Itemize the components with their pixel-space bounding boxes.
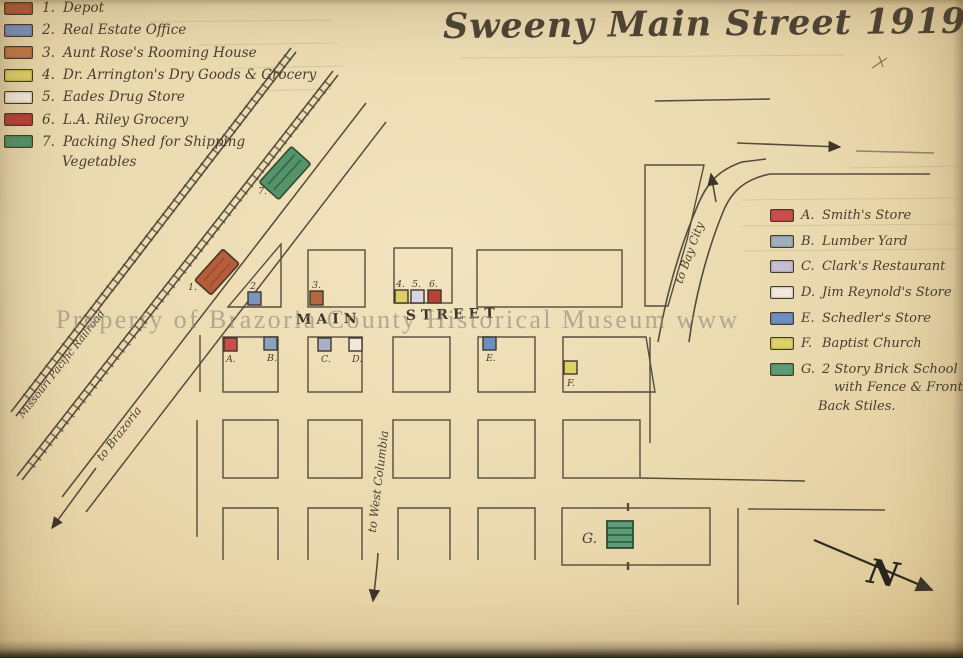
legend-item-7: 7. Packing Shed for Shipping [4,131,316,153]
marker-label-a: A. [225,354,236,365]
north-arrow: N [814,540,932,597]
legend-letter-g: G. [801,362,819,377]
marker-label-4: 4. [395,279,405,290]
map-title: Sweeny Main Street 1919 [443,4,858,47]
legend-item-4: 4. Dr. Arrington's Dry Goods & Grocery [4,64,316,86]
legend-letter-f: F. [801,336,819,351]
legend-number-2: 2. [42,22,60,38]
west-columbia-arrow [373,553,378,601]
legend-item-e: E. Schedler's Store [770,305,963,331]
legend-letter-c: C. [801,259,819,274]
legend-swatch-5 [4,91,33,104]
legend-swatch-c [770,260,794,273]
building-markers-above [248,290,441,305]
legend-label-b: Lumber Yard [822,234,908,249]
legend-item-g: G. 2 Story Brick School [770,357,963,383]
legend-number-5: 5. [42,89,60,105]
to-west-columbia-label: to West Columbia [365,430,391,534]
legend-letter-d: D. [801,285,819,300]
legend-item-1: 1. Depot [4,0,316,19]
depot-marker [195,249,239,295]
legend-swatch-3 [4,46,33,59]
main-street-label-word2: STREET [406,306,500,324]
legend-label-a: Smith's Store [822,208,911,223]
legend-label-3: Aunt Rose's Rooming House [63,45,257,61]
school-marker [607,521,633,548]
marker-label-e: E. [485,353,496,364]
legend-label-g-line2: with Fence & Front a [834,380,963,395]
depot-label: 1. [188,282,197,293]
legend-numbered: 1. Depot 2. Real Estate Office 3. Aunt R… [4,0,316,170]
legend-item-d: D. Jim Reynold's Store [770,280,963,306]
marker-label-3: 3. [312,280,321,291]
legend-swatch-4 [4,69,33,82]
legend-swatch-d [770,286,794,299]
legend-label-7-line2: Vegetables [62,154,316,170]
legend-item-2: 2. Real Estate Office [4,19,316,41]
legend-item-a: A. Smith's Store [770,203,963,229]
legend-swatch-f [770,337,794,350]
legend-label-4: Dr. Arrington's Dry Goods & Grocery [63,67,316,83]
legend-swatch-7 [4,135,33,148]
legend-swatch-6 [4,113,33,126]
packing-shed-label: 7. [258,186,267,197]
legend-label-g-line3: Back Stiles. [818,399,963,414]
to-brazoria-label: to Brazoria [93,404,144,464]
legend-label-d: Jim Reynold's Store [822,285,952,300]
legend-swatch-e [770,312,794,325]
legend-item-f: F. Baptist Church [770,331,963,357]
legend-item-b: B. Lumber Yard [770,229,963,255]
legend-label-c: Clark's Restaurant [822,259,945,274]
legend-label-7: Packing Shed for Shipping [63,134,245,150]
legend-item-5: 5. Eades Drug Store [4,86,316,108]
legend-swatch-2 [4,24,33,37]
pen-mark [872,56,887,68]
marker-label-f: F. [566,378,575,389]
legend-number-4: 4. [42,67,60,83]
legend-number-3: 3. [42,45,60,61]
railroad-label: Missouri Pacific Railroad [15,308,107,422]
legend-swatch-a [770,209,794,222]
marker-label-c: C. [321,354,331,365]
legend-number-1: 1. [42,0,60,16]
marker-label-g: G. [582,531,597,547]
legend-label-f: Baptist Church [822,336,922,351]
north-label: N [863,551,903,596]
legend-label-g: 2 Story Brick School [822,362,958,377]
main-street-label-word1: MAIN [296,311,362,328]
legend-label-e: Schedler's Store [822,311,931,326]
map-page: 1. 7. 2. 3. 4. 5. 6. A. [0,0,963,658]
marker-label-5: 5. [412,279,421,290]
marker-label-b: B. [266,353,277,364]
legend-number-7: 7. [42,134,60,150]
legend-swatch-b [770,235,794,248]
legend-label-5: Eades Drug Store [63,89,185,105]
legend-number-6: 6. [42,112,60,128]
marker-label-6: 6. [429,279,438,290]
legend-item-c: C. Clark's Restaurant [770,254,963,280]
legend-label-6: L.A. Riley Grocery [63,112,188,128]
legend-lettered: A. Smith's Store B. Lumber Yard C. Clark… [770,203,963,414]
legend-letter-a: A. [801,208,819,223]
legend-label-2: Real Estate Office [63,22,186,38]
legend-item-3: 3. Aunt Rose's Rooming House [4,42,316,64]
legend-letter-e: E. [801,311,819,326]
marker-label-2: 2. [249,281,259,292]
legend-swatch-1 [4,2,33,15]
legend-swatch-g [770,363,794,376]
legend-label-1: Depot [63,0,104,16]
marker-label-d: D. [351,354,362,365]
legend-item-6: 6. L.A. Riley Grocery [4,108,316,130]
legend-letter-b: B. [801,234,819,249]
